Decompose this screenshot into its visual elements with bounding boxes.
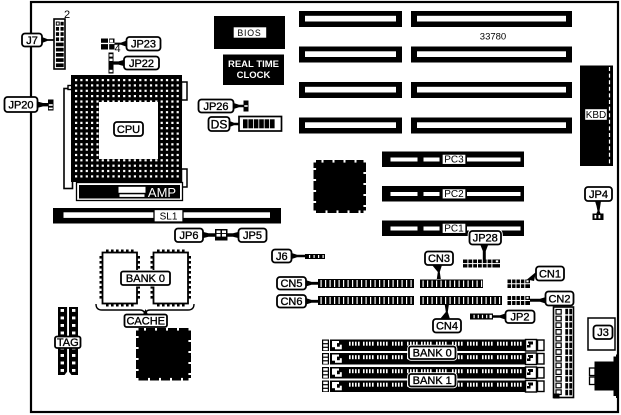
svg-text:JP5: JP5 [243, 230, 262, 242]
svg-text:BIOS: BIOS [237, 28, 261, 38]
svg-text:BANK 1: BANK 1 [413, 375, 452, 387]
svg-text:J7: J7 [26, 35, 38, 47]
svg-text:CLOCK: CLOCK [237, 70, 271, 81]
svg-text:JP6: JP6 [180, 230, 199, 242]
svg-text:CN5: CN5 [280, 278, 302, 290]
svg-text:CN1: CN1 [539, 268, 561, 280]
svg-text:PC1: PC1 [444, 224, 464, 235]
svg-text:SL1: SL1 [160, 212, 178, 223]
svg-text:CPU: CPU [117, 124, 140, 136]
svg-text:PC3: PC3 [444, 155, 464, 166]
svg-text:JP23: JP23 [131, 39, 156, 51]
svg-text:JP2: JP2 [511, 312, 530, 324]
svg-text:CACHE: CACHE [126, 316, 165, 328]
svg-text:JP20: JP20 [8, 99, 33, 111]
svg-text:KBD: KBD [586, 110, 607, 121]
svg-text:JP28: JP28 [473, 233, 498, 245]
svg-text:BANK 0: BANK 0 [126, 273, 165, 285]
svg-text:2: 2 [64, 9, 70, 21]
svg-text:CN6: CN6 [280, 296, 302, 308]
svg-text:JP22: JP22 [129, 58, 154, 70]
svg-text:JP4: JP4 [589, 189, 608, 201]
svg-text:AMP: AMP [148, 185, 176, 200]
svg-text:J6: J6 [276, 251, 288, 263]
svg-text:BANK 0: BANK 0 [413, 348, 452, 360]
svg-text:DS: DS [211, 117, 228, 131]
svg-text:CN3: CN3 [428, 253, 450, 265]
svg-text:JP26: JP26 [203, 101, 228, 113]
svg-text:CN2: CN2 [548, 293, 570, 305]
svg-text:33780: 33780 [480, 32, 506, 43]
svg-text:CN4: CN4 [436, 321, 458, 333]
svg-text:J3: J3 [597, 327, 609, 339]
svg-text:TAG: TAG [57, 337, 79, 349]
svg-text:REAL TIME: REAL TIME [228, 59, 279, 70]
svg-text:PC2: PC2 [444, 189, 464, 200]
